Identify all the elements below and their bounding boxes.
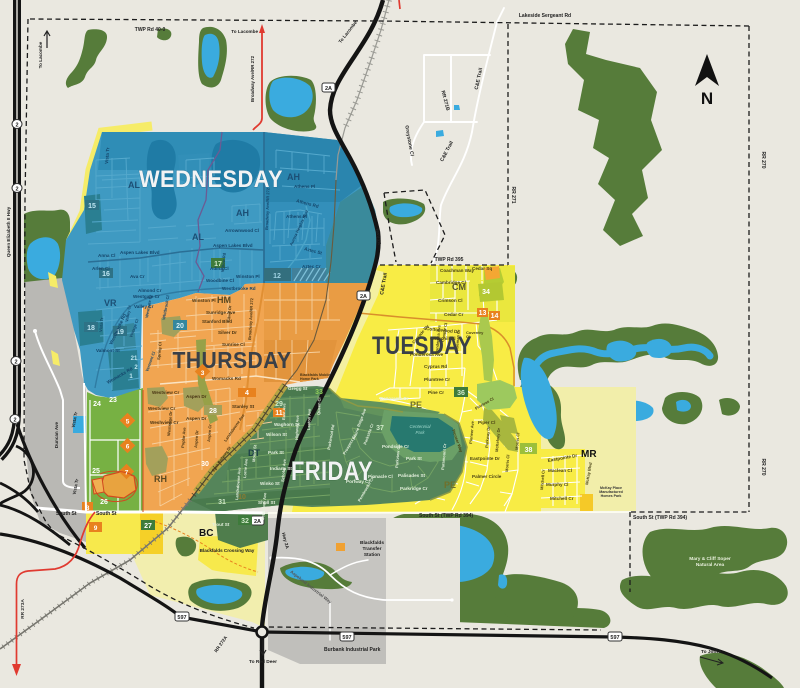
svg-text:Blackfalds: Blackfalds (360, 540, 384, 546)
svg-text:Woodbine Cl: Woodbine Cl (206, 278, 234, 283)
svg-text:Aspen Lakes Blvd: Aspen Lakes Blvd (213, 243, 253, 248)
svg-text:Panorama Dr: Panorama Dr (380, 396, 409, 401)
svg-text:Anna Cl: Anna Cl (98, 253, 115, 258)
svg-text:Park St: Park St (406, 456, 422, 461)
svg-text:Aspen Lakes Blvd: Aspen Lakes Blvd (120, 250, 160, 255)
svg-text:27: 27 (144, 523, 152, 530)
svg-text:Eastpointe Dr: Eastpointe Dr (470, 456, 500, 461)
svg-text:Westview Cr: Westview Cr (148, 406, 175, 411)
svg-text:Cl: Cl (466, 334, 470, 339)
svg-text:Palisades St: Palisades St (398, 473, 426, 478)
svg-text:597: 597 (177, 615, 186, 621)
svg-text:Broadway Ave/RR 272: Broadway Ave/RR 272 (250, 55, 255, 102)
svg-text:Leaton Ave: Leaton Ave (306, 408, 312, 430)
svg-text:Transfer: Transfer (363, 546, 382, 552)
svg-text:Maclean Cl: Maclean Cl (548, 468, 572, 473)
svg-text:To Red Deer: To Red Deer (249, 659, 277, 665)
svg-text:Mitchell Cr: Mitchell Cr (550, 496, 574, 501)
svg-text:2A: 2A (325, 86, 332, 92)
svg-text:South St: South St (56, 511, 77, 517)
svg-text:Queen Elizabeth II Hwy: Queen Elizabeth II Hwy (6, 206, 11, 257)
svg-text:Athens Pl: Athens Pl (294, 184, 315, 189)
svg-text:Ava Cr: Ava Cr (130, 274, 145, 279)
svg-text:Stanley St: Stanley St (232, 404, 255, 409)
svg-text:13: 13 (479, 310, 487, 317)
svg-text:2: 2 (14, 360, 17, 366)
svg-text:37: 37 (376, 425, 384, 432)
svg-text:36: 36 (457, 390, 465, 397)
svg-text:PE: PE (444, 480, 456, 490)
svg-text:Natural Area: Natural Area (696, 562, 725, 568)
svg-text:21: 21 (131, 356, 138, 362)
svg-text:Murphy Cl: Murphy Cl (546, 482, 568, 487)
svg-text:WEDNESDAY: WEDNESDAY (139, 166, 283, 193)
svg-text:THURSDAY: THURSDAY (173, 347, 292, 373)
svg-text:4: 4 (245, 390, 249, 397)
svg-text:31: 31 (218, 499, 226, 506)
svg-text:N: N (701, 89, 713, 108)
svg-text:Park: Park (415, 430, 425, 435)
svg-text:To Lacombe: To Lacombe (38, 41, 43, 68)
svg-text:Cambridge Cl: Cambridge Cl (436, 280, 466, 285)
svg-text:34: 34 (482, 289, 490, 296)
svg-text:Park St: Park St (268, 450, 284, 455)
svg-text:16: 16 (102, 271, 110, 278)
svg-text:Duncan Ave: Duncan Ave (54, 421, 59, 448)
svg-text:BC: BC (199, 528, 213, 539)
svg-text:AL: AL (128, 180, 140, 190)
svg-text:26: 26 (100, 499, 108, 506)
svg-text:Cedar Cr: Cedar Cr (444, 312, 464, 317)
svg-text:Winko St: Winko St (260, 481, 280, 486)
svg-text:Trout St: Trout St (212, 522, 230, 527)
svg-text:Pine Cr: Pine Cr (428, 390, 444, 395)
svg-text:23: 23 (109, 397, 117, 404)
svg-text:38: 38 (525, 447, 533, 454)
svg-text:Highway Ave: Highway Ave (294, 415, 300, 441)
svg-text:32: 32 (241, 518, 249, 525)
svg-text:TWP Rd 395: TWP Rd 395 (435, 257, 464, 263)
svg-text:Blackfalds Crossing Way: Blackfalds Crossing Way (200, 548, 255, 553)
svg-text:RR 270: RR 270 (760, 459, 766, 476)
svg-text:597: 597 (342, 635, 351, 641)
svg-text:3: 3 (201, 370, 205, 377)
svg-text:24: 24 (93, 401, 101, 408)
svg-text:2: 2 (15, 187, 18, 193)
svg-text:Aspen Dr: Aspen Dr (186, 394, 207, 399)
svg-text:Almond Cr: Almond Cr (138, 288, 162, 293)
svg-text:Silver Dr: Silver Dr (218, 330, 237, 335)
svg-text:Westview Cr: Westview Cr (152, 390, 179, 395)
svg-text:Crimson Cl: Crimson Cl (438, 298, 463, 303)
svg-text:6: 6 (126, 444, 130, 451)
svg-text:14: 14 (491, 313, 499, 320)
svg-text:Arlen Cl: Arlen Cl (92, 266, 110, 271)
svg-text:Palmer Circle: Palmer Circle (472, 474, 502, 479)
svg-text:30: 30 (201, 461, 209, 468)
svg-text:HM: HM (217, 295, 231, 305)
svg-text:Westbrooke Rd: Westbrooke Rd (222, 286, 256, 291)
svg-text:Mary & Cliff Soper: Mary & Cliff Soper (689, 556, 731, 562)
svg-text:Plumtree Cr: Plumtree Cr (424, 377, 450, 382)
svg-text:15: 15 (88, 203, 96, 210)
svg-text:Cedar Sq: Cedar Sq (472, 266, 492, 271)
svg-text:18: 18 (87, 325, 95, 332)
svg-text:Gregg St: Gregg St (288, 386, 308, 391)
svg-text:Piper Cl: Piper Cl (478, 420, 495, 425)
svg-text:AH: AH (287, 172, 300, 182)
svg-text:Valmont St: Valmont St (96, 348, 120, 353)
svg-text:Aspen Dr: Aspen Dr (186, 416, 207, 421)
svg-text:RH: RH (154, 474, 167, 484)
svg-text:8: 8 (86, 505, 90, 512)
svg-text:VR: VR (104, 298, 117, 308)
svg-text:12: 12 (273, 273, 281, 280)
svg-text:Centennial: Centennial (410, 424, 432, 429)
svg-text:PE: PE (410, 400, 422, 410)
svg-text:33: 33 (315, 389, 323, 396)
svg-text:To Lacombe: To Lacombe (231, 29, 258, 34)
svg-text:AL: AL (192, 232, 204, 242)
svg-text:25: 25 (92, 468, 100, 475)
svg-text:Sunrise Cl: Sunrise Cl (222, 342, 245, 347)
svg-text:9: 9 (94, 525, 98, 532)
svg-text:Winston Pl: Winston Pl (192, 298, 216, 303)
svg-text:RR 273A: RR 273A (20, 599, 26, 619)
svg-text:Homes Park: Homes Park (601, 494, 622, 498)
svg-text:Weshview Cr: Weshview Cr (150, 420, 179, 425)
svg-text:20: 20 (176, 323, 184, 330)
svg-text:Aztec Cr: Aztec Cr (302, 264, 321, 269)
svg-text:Burbank Industrial Park: Burbank Industrial Park (324, 647, 381, 653)
svg-text:Arrownwood Cl: Arrownwood Cl (225, 228, 259, 233)
svg-text:7: 7 (125, 470, 129, 477)
svg-text:Cyprus Rd: Cyprus Rd (424, 364, 447, 369)
svg-text:RR 271: RR 271 (510, 187, 516, 204)
svg-text:Queen Cl: Queen Cl (316, 397, 322, 415)
svg-text:2: 2 (13, 418, 16, 424)
svg-text:Winston Pl: Winston Pl (236, 274, 260, 279)
svg-text:Coachman Way: Coachman Way (440, 268, 474, 273)
svg-text:To Joffre: To Joffre (701, 649, 721, 655)
svg-text:Lakeside Sergeant Rd: Lakeside Sergeant Rd (519, 13, 571, 19)
svg-text:28: 28 (209, 408, 217, 415)
svg-text:Wilson St: Wilson St (266, 432, 287, 437)
svg-text:Station: Station (364, 552, 380, 558)
svg-text:597: 597 (610, 635, 619, 641)
svg-text:2A: 2A (360, 294, 367, 300)
svg-text:Home Park: Home Park (300, 377, 319, 381)
svg-text:AH: AH (236, 208, 249, 218)
svg-text:MR: MR (581, 449, 597, 460)
svg-text:Parkridge Cr: Parkridge Cr (400, 486, 428, 491)
svg-text:South St (TWP Rd 394): South St (TWP Rd 394) (633, 515, 687, 521)
svg-text:South St: South St (96, 511, 117, 517)
svg-text:2: 2 (15, 123, 18, 129)
svg-text:East Ave: East Ave (281, 402, 287, 420)
svg-text:TWP Rd 40-0: TWP Rd 40-0 (135, 27, 166, 33)
svg-text:RR 270: RR 270 (760, 152, 766, 169)
svg-text:South St (TWP Rd 394): South St (TWP Rd 394) (419, 513, 473, 519)
svg-text:Womacks Rd: Womacks Rd (212, 376, 241, 381)
svg-text:5: 5 (126, 419, 130, 426)
